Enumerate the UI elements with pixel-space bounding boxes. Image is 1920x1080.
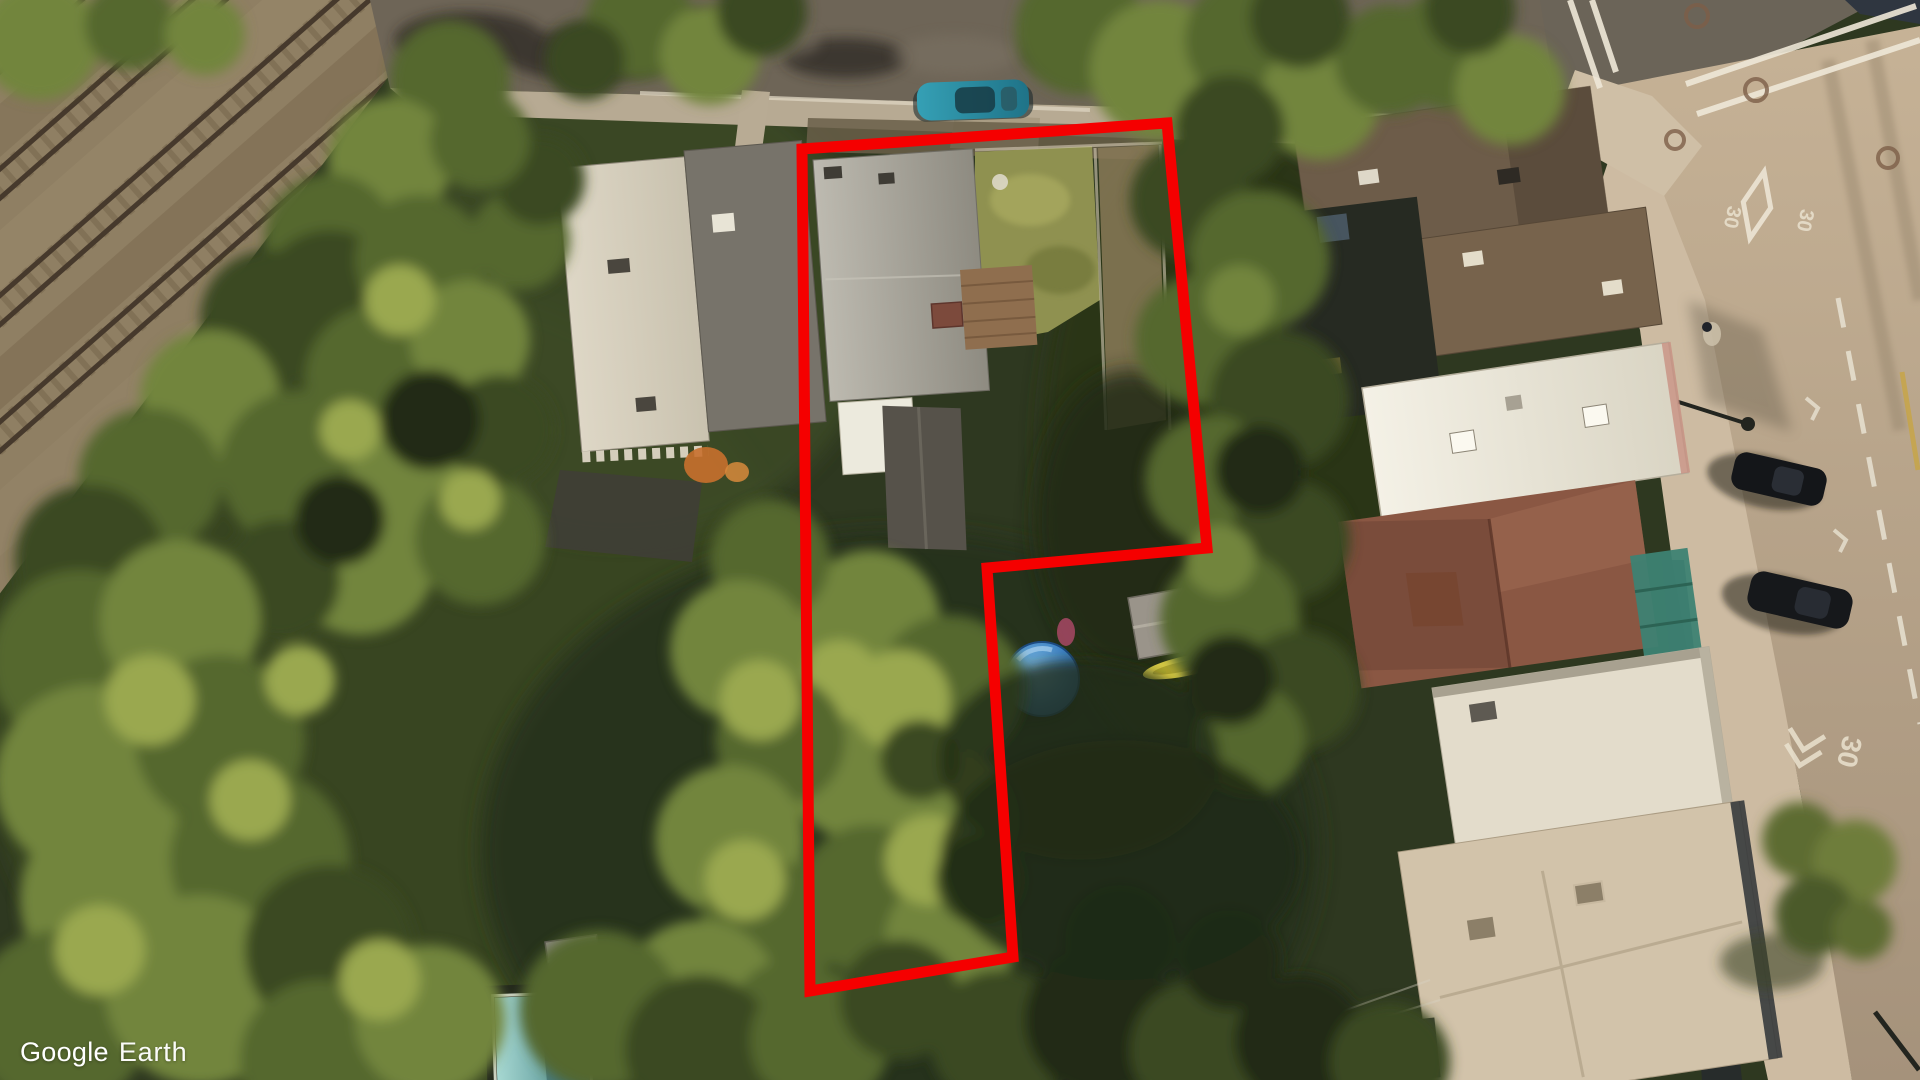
watermark-google: Google bbox=[20, 1037, 109, 1067]
orange-object bbox=[725, 462, 749, 482]
google-earth-watermark: GoogleEarth bbox=[20, 1039, 187, 1066]
wood-deck bbox=[960, 265, 1037, 350]
lane-number-left: 30 bbox=[1719, 204, 1745, 230]
pink-toy bbox=[1057, 618, 1075, 646]
orange-play-structure bbox=[684, 447, 728, 483]
chimney bbox=[931, 302, 963, 328]
watermark-earth: Earth bbox=[119, 1037, 188, 1067]
teal-car bbox=[912, 79, 1033, 122]
google-earth-viewport[interactable]: 30 30 30 bbox=[0, 0, 1920, 1080]
neighbor-building bbox=[556, 141, 827, 462]
satellite-imagery: 30 30 30 bbox=[0, 0, 1920, 1080]
lane-number-right: 30 bbox=[1792, 207, 1818, 233]
